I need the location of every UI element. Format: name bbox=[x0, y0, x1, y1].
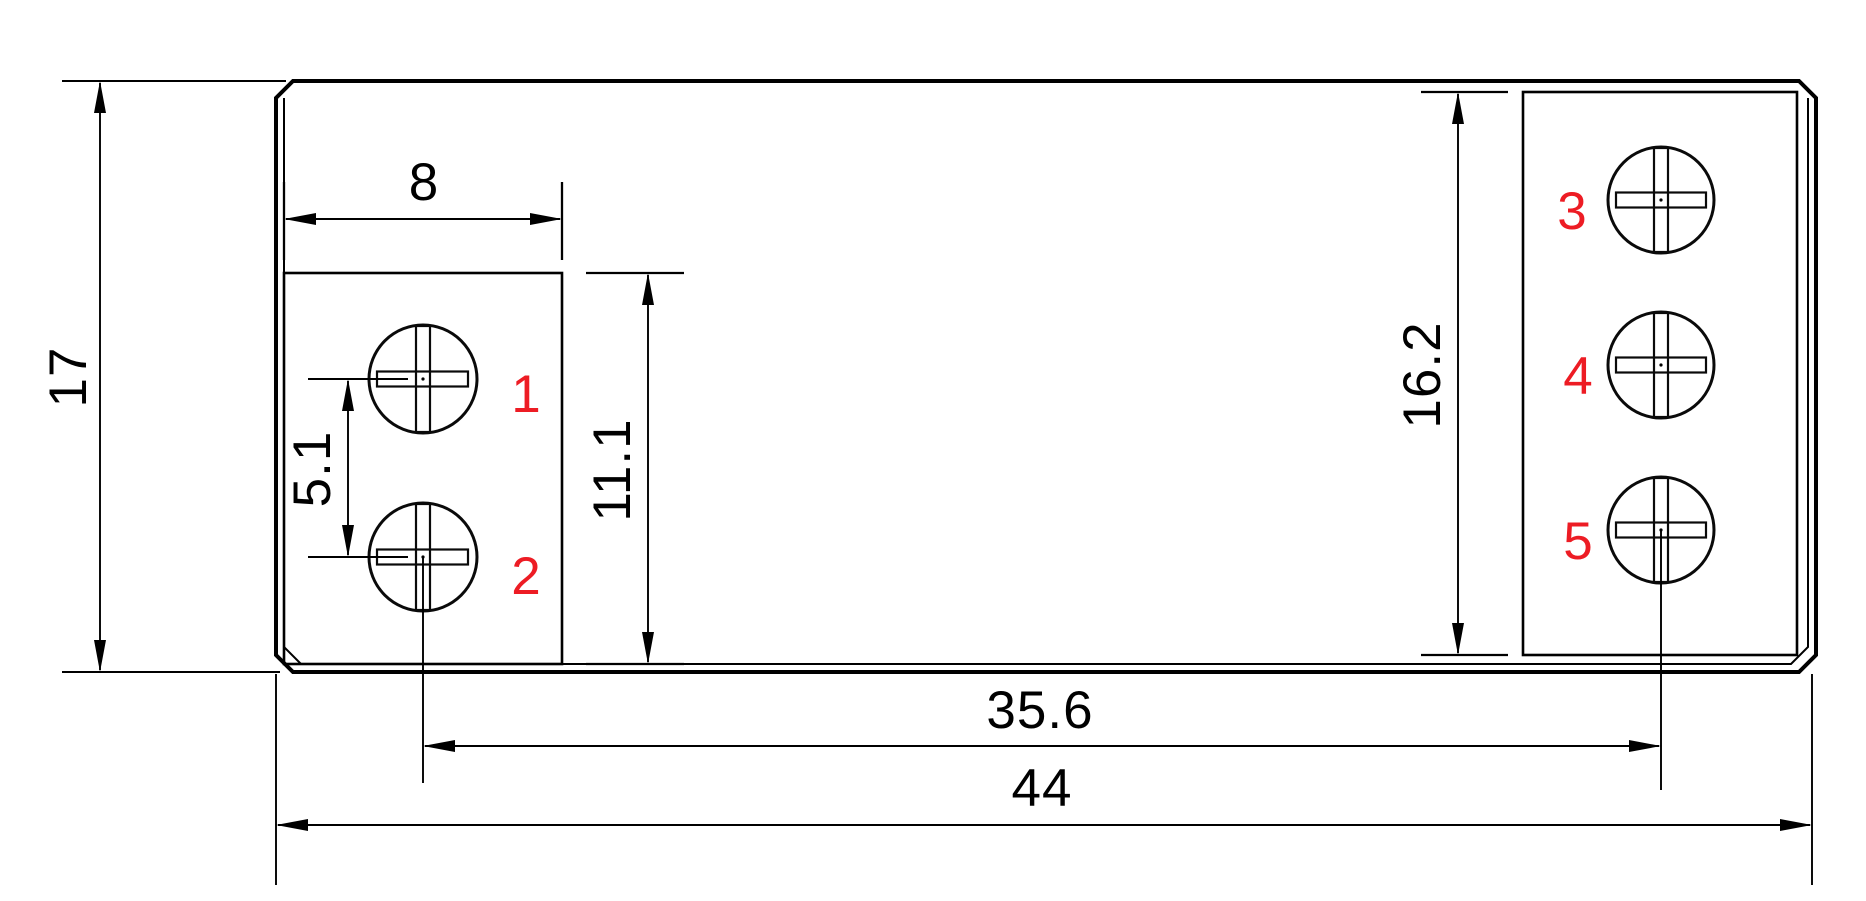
dim51-arrow-down bbox=[342, 525, 354, 557]
dimension-left-block-height: 11.1 bbox=[583, 273, 684, 664]
terminal-label-5: 5 bbox=[1563, 512, 1592, 571]
dim111-arrow-up bbox=[642, 273, 654, 305]
dim356-arrow-right bbox=[1629, 740, 1661, 752]
dim162-arrow-down bbox=[1452, 623, 1464, 655]
terminal-label-4: 4 bbox=[1563, 347, 1592, 406]
dimension-drawing: 1 2 3 4 5 bbox=[0, 0, 1866, 901]
dim8-arrow-right bbox=[530, 213, 562, 225]
dim51-arrow-up bbox=[342, 379, 354, 411]
dimension-left-block-width: 8 bbox=[284, 153, 562, 260]
screw-4 bbox=[1608, 312, 1714, 418]
dim44-arrow-right bbox=[1780, 819, 1812, 831]
dim17-label: 17 bbox=[39, 347, 98, 408]
right-terminal-block: 3 4 5 bbox=[1523, 92, 1797, 655]
dim162-arrow-up bbox=[1452, 92, 1464, 124]
dim51-label: 5.1 bbox=[283, 431, 342, 508]
dimension-left-screw-pitch: 5.1 bbox=[283, 379, 408, 557]
dim111-label: 11.1 bbox=[583, 418, 642, 521]
dim111-arrow-down bbox=[642, 632, 654, 664]
dimension-right-block-height: 16.2 bbox=[1393, 92, 1508, 655]
screw-1-center-mark bbox=[421, 377, 424, 380]
dim356-label: 35.6 bbox=[986, 681, 1093, 740]
dim44-arrow-left bbox=[276, 819, 308, 831]
dimension-overall-height: 17 bbox=[39, 81, 286, 672]
screw-3-center-mark bbox=[1659, 198, 1662, 201]
dim162-label: 16.2 bbox=[1393, 321, 1452, 428]
screw-4-center-mark bbox=[1659, 363, 1662, 366]
terminal-label-2: 2 bbox=[511, 547, 540, 606]
drawing-canvas: 1 2 3 4 5 bbox=[0, 0, 1866, 901]
terminal-label-3: 3 bbox=[1557, 182, 1586, 241]
dim356-arrow-left bbox=[423, 740, 455, 752]
dim8-arrow-left bbox=[284, 213, 316, 225]
dim17-arrow-up bbox=[94, 81, 106, 113]
screw-3 bbox=[1608, 147, 1714, 253]
dimension-screw-span: 35.6 bbox=[423, 530, 1661, 790]
terminal-label-1: 1 bbox=[511, 365, 540, 424]
dim17-arrow-down bbox=[94, 640, 106, 672]
dim8-label: 8 bbox=[409, 153, 439, 212]
dim44-label: 44 bbox=[1012, 759, 1073, 818]
